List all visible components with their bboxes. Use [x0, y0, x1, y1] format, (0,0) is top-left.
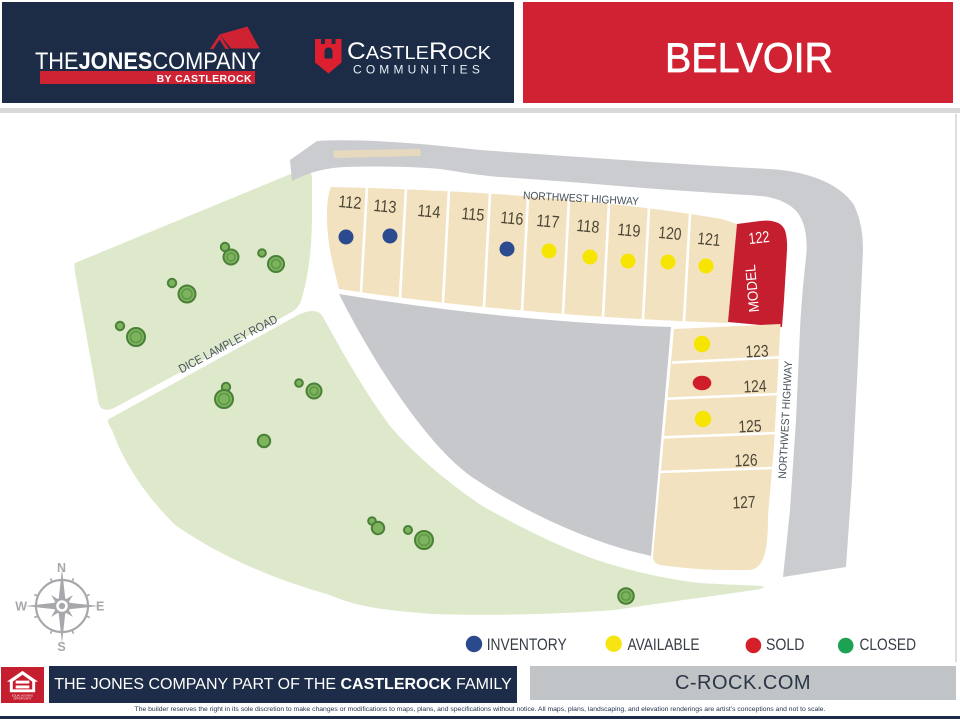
svg-text:119: 119	[617, 220, 642, 241]
svg-text:125: 125	[738, 417, 762, 437]
svg-text:126: 126	[734, 451, 758, 471]
svg-text:NORTHWEST HIGHWAY: NORTHWEST HIGHWAY	[777, 360, 795, 479]
svg-text:S: S	[57, 640, 65, 654]
svg-text:124: 124	[743, 377, 767, 397]
svg-text:115: 115	[461, 204, 486, 225]
svg-text:W: W	[15, 600, 27, 614]
svg-text:112: 112	[338, 192, 363, 213]
svg-text:117: 117	[536, 211, 561, 232]
svg-text:INVENTORY: INVENTORY	[487, 635, 567, 654]
svg-text:127: 127	[732, 493, 756, 513]
svg-text:BELVOIR: BELVOIR	[665, 34, 833, 81]
svg-text:116: 116	[500, 208, 525, 229]
svg-text:AVAILABLE: AVAILABLE	[628, 635, 700, 654]
svg-text:120: 120	[658, 223, 683, 244]
svg-text:114: 114	[417, 201, 442, 222]
svg-text:N: N	[57, 561, 66, 575]
svg-text:SOLD: SOLD	[766, 635, 805, 654]
svg-text:E: E	[96, 600, 104, 614]
svg-text:118: 118	[576, 216, 601, 237]
svg-text:113: 113	[373, 196, 398, 217]
svg-text:COMMUNITIES: COMMUNITIES	[353, 65, 484, 77]
svg-text:CASTLEROCK: CASTLEROCK	[347, 38, 492, 65]
svg-text:OPPORTUNITY: OPPORTUNITY	[13, 698, 31, 701]
svg-text:122: 122	[748, 229, 771, 248]
svg-text:121: 121	[697, 229, 722, 250]
svg-text:CLOSED: CLOSED	[860, 635, 917, 654]
svg-text:123: 123	[745, 342, 769, 362]
